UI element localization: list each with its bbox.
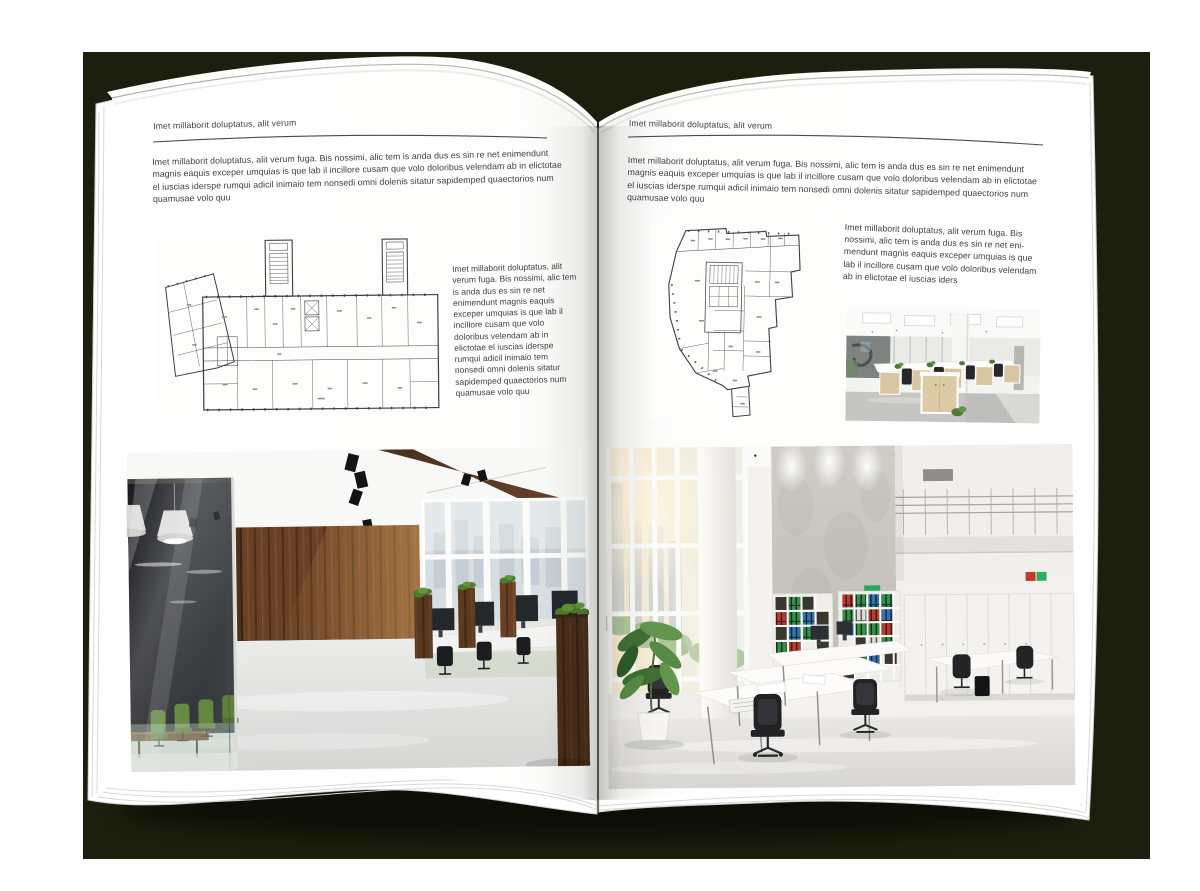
left-header-rule — [153, 132, 548, 146]
vent-grille — [923, 469, 953, 481]
right-page-side-text: Imet millaborit doluptatus, alit verum f… — [843, 221, 1044, 289]
mezzanine — [895, 444, 1074, 581]
left-floorplan — [156, 231, 448, 418]
wood-wall — [236, 525, 421, 641]
safety-sign-green — [1037, 572, 1047, 581]
right-office-photo — [605, 444, 1077, 789]
right-header-rule — [628, 133, 1044, 149]
glass-meeting-room — [126, 478, 239, 773]
safety-sign-red — [1026, 572, 1036, 581]
magazine-mockup-screenshot: { "colors": { "backdrop": "#1c1f0d", "ca… — [0, 0, 1200, 891]
right-floorplan — [647, 219, 847, 423]
left-page-side-text: Imet millaborit doluptatus, alit verum f… — [452, 261, 581, 399]
left-page-header: Imet millaborit doluptatus, alit verum — [153, 114, 453, 131]
right-page-header: Imet millaborit doluptatus, alit verum — [629, 118, 929, 134]
left-page: Imet millaborit doluptatus, alit verum I… — [0, 0, 600, 891]
left-office-photo — [126, 447, 591, 772]
right-small-photo — [845, 308, 1041, 424]
right-page: Imet millaborit doluptatus, alit verum I… — [600, 0, 1200, 891]
left-page-intro: Imet millaborit doluptatus, alit verum f… — [152, 147, 567, 206]
right-page-intro: Imet millaborit doluptatus, alit verum f… — [627, 154, 1046, 213]
floor — [608, 715, 1075, 789]
